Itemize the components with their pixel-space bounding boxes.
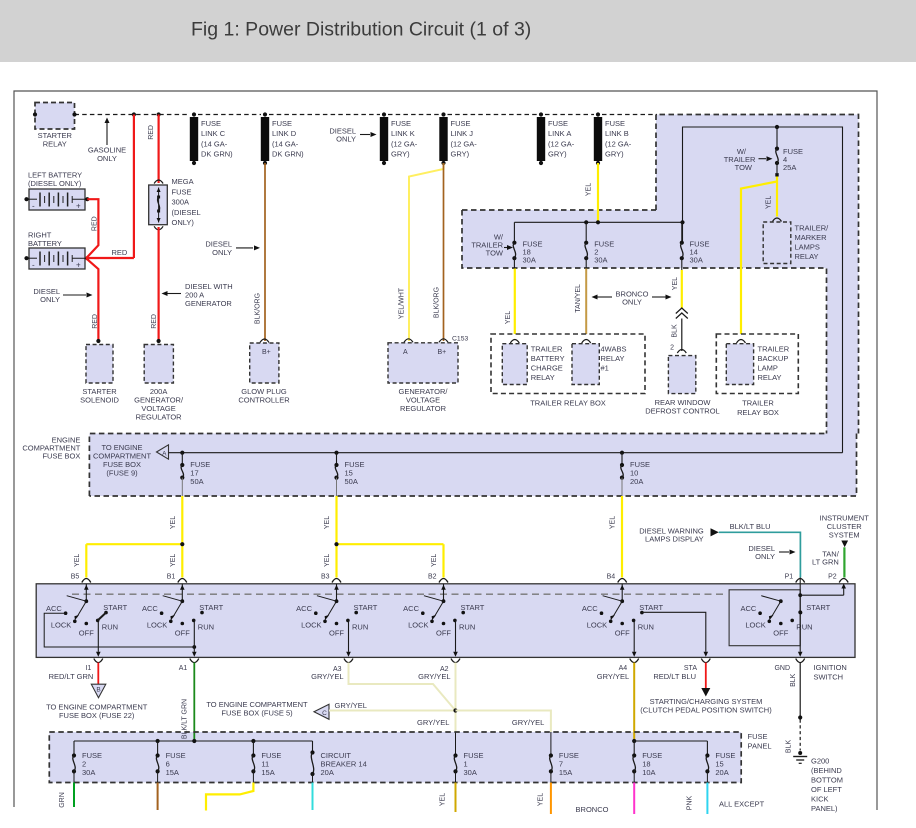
svg-text:GRY): GRY) [605, 150, 624, 159]
svg-text:GRY): GRY) [451, 150, 470, 159]
svg-text:B3: B3 [321, 574, 330, 581]
svg-text:RELAY: RELAY [531, 373, 555, 382]
svg-text:KICK: KICK [811, 795, 829, 804]
svg-text:GRY/YEL: GRY/YEL [417, 718, 449, 727]
svg-text:DEFROST CONTROL: DEFROST CONTROL [645, 407, 719, 416]
svg-text:RELAY: RELAY [43, 140, 67, 149]
svg-text:RED: RED [112, 248, 128, 257]
svg-text:RELAY: RELAY [601, 354, 625, 363]
svg-text:A: A [403, 349, 408, 356]
svg-text:30A: 30A [594, 256, 607, 265]
svg-text:OFF: OFF [175, 629, 190, 638]
svg-text:START: START [103, 603, 127, 612]
svg-text:REGULATOR: REGULATOR [136, 413, 183, 422]
svg-text:FUSE BOX: FUSE BOX [42, 452, 80, 461]
svg-text:RED: RED [92, 314, 99, 329]
svg-text:TAN/YEL: TAN/YEL [575, 284, 582, 313]
svg-text:(BEHIND: (BEHIND [811, 766, 842, 775]
svg-text:BACKUP: BACKUP [758, 354, 789, 363]
svg-text:ALL EXCEPT: ALL EXCEPT [719, 800, 765, 809]
svg-text:(14 GA-: (14 GA- [272, 139, 299, 148]
svg-text:TRAILER/: TRAILER/ [795, 224, 830, 233]
svg-text:15A: 15A [166, 768, 179, 777]
svg-text:START: START [639, 603, 663, 612]
svg-text:B+: B+ [262, 349, 271, 356]
svg-text:50A: 50A [190, 477, 203, 486]
svg-text:LINK C: LINK C [201, 129, 226, 138]
svg-text:B4: B4 [607, 574, 616, 581]
svg-text:GRY/YEL: GRY/YEL [311, 672, 343, 681]
svg-text:RUN: RUN [198, 622, 214, 631]
svg-text:LINK J: LINK J [451, 129, 474, 138]
svg-text:CONTROLLER: CONTROLLER [238, 396, 290, 405]
svg-text:YEL: YEL [766, 196, 773, 209]
svg-text:(FUSE 9): (FUSE 9) [106, 469, 138, 478]
svg-text:FUSE: FUSE [748, 732, 768, 741]
svg-text:ONLY: ONLY [622, 298, 642, 307]
svg-text:LINK D: LINK D [272, 129, 297, 138]
svg-text:G200: G200 [811, 757, 829, 766]
svg-text:LOCK: LOCK [51, 621, 71, 630]
svg-text:GRN: GRN [59, 792, 66, 808]
svg-text:BATTERY: BATTERY [531, 354, 565, 363]
svg-text:BLK: BLK [790, 673, 797, 687]
svg-text:OFF: OFF [329, 629, 344, 638]
svg-text:STA: STA [684, 665, 697, 672]
svg-text:YEL: YEL [538, 793, 545, 806]
svg-text:B5: B5 [71, 574, 80, 581]
svg-text:(DIESEL ONLY): (DIESEL ONLY) [28, 179, 82, 188]
svg-text:YEL/WHT: YEL/WHT [399, 287, 406, 319]
svg-text:DK GRN): DK GRN) [272, 150, 304, 159]
svg-text:C153: C153 [452, 336, 468, 343]
svg-text:DK GRN): DK GRN) [201, 150, 233, 159]
svg-text:(12 GA-: (12 GA- [391, 139, 418, 148]
svg-text:SWITCH: SWITCH [814, 672, 844, 681]
svg-text:BLK/LT BLU: BLK/LT BLU [730, 522, 771, 531]
svg-text:FUSE: FUSE [272, 119, 292, 128]
svg-text:GRY/YEL: GRY/YEL [418, 672, 450, 681]
svg-text:TRAILER RELAY BOX: TRAILER RELAY BOX [530, 399, 606, 408]
svg-text:B2: B2 [428, 574, 437, 581]
svg-text:FUSE: FUSE [451, 119, 471, 128]
svg-text:TOW: TOW [486, 249, 504, 258]
svg-text:FUSE: FUSE [605, 119, 625, 128]
svg-text:YEL: YEL [170, 516, 177, 529]
svg-text:YEL: YEL [170, 554, 177, 567]
svg-text:LINK A: LINK A [548, 129, 571, 138]
svg-text:FUSE: FUSE [201, 119, 221, 128]
svg-text:ACC: ACC [582, 604, 598, 613]
svg-text:FUSE: FUSE [548, 119, 568, 128]
svg-text:OFF: OFF [615, 629, 630, 638]
svg-text:GRY/YEL: GRY/YEL [335, 701, 367, 710]
svg-text:PANEL): PANEL) [811, 804, 838, 813]
svg-text:LOCK: LOCK [408, 621, 428, 630]
svg-text:LOCK: LOCK [301, 621, 321, 630]
svg-text:P2: P2 [828, 574, 837, 581]
svg-text:RED: RED [151, 314, 158, 329]
svg-text:RUN: RUN [352, 622, 368, 631]
svg-text:YEL: YEL [431, 554, 438, 567]
svg-text:START: START [199, 603, 223, 612]
svg-text:ACC: ACC [296, 604, 312, 613]
svg-text:B+: B+ [438, 349, 447, 356]
svg-text:PANEL: PANEL [748, 742, 772, 751]
svg-text:BOTTOM: BOTTOM [811, 776, 843, 785]
svg-text:RELAY: RELAY [795, 252, 819, 261]
svg-text:ONLY: ONLY [755, 552, 775, 561]
svg-text:ONLY: ONLY [40, 295, 60, 304]
svg-text:10A: 10A [642, 768, 655, 777]
svg-text:20A: 20A [630, 477, 643, 486]
svg-text:YEL: YEL [610, 516, 617, 529]
svg-text:FUSE: FUSE [391, 119, 411, 128]
svg-text:RELAY: RELAY [758, 373, 782, 382]
svg-text:30A: 30A [464, 768, 477, 777]
svg-text:REGULATOR: REGULATOR [400, 404, 447, 413]
svg-text:BLK/LT GRN: BLK/LT GRN [182, 699, 189, 739]
svg-text:RED/LT GRN: RED/LT GRN [49, 672, 94, 681]
svg-text:GRY): GRY) [548, 150, 567, 159]
svg-text:15A: 15A [559, 768, 572, 777]
svg-text:BLK/ORG: BLK/ORG [255, 293, 262, 324]
svg-text:RED: RED [92, 216, 99, 231]
svg-text:LAMPS: LAMPS [795, 243, 820, 252]
svg-text:OFF: OFF [773, 629, 788, 638]
svg-text:YEL: YEL [324, 516, 331, 529]
svg-text:(CLUTCH PEDAL POSITION SWITCH): (CLUTCH PEDAL POSITION SWITCH) [640, 706, 772, 715]
svg-text:20A: 20A [715, 768, 728, 777]
svg-text:+: + [76, 261, 81, 270]
svg-text:FUSE BOX (FUSE 5): FUSE BOX (FUSE 5) [221, 709, 293, 718]
svg-text:MARKER: MARKER [795, 233, 828, 242]
svg-text:RED: RED [148, 125, 155, 140]
svg-text:LINK K: LINK K [391, 129, 415, 138]
svg-text:GND: GND [774, 665, 790, 672]
svg-text:-: - [32, 261, 35, 270]
svg-text:YEL: YEL [324, 554, 331, 567]
svg-text:30A: 30A [523, 256, 536, 265]
svg-text:50A: 50A [345, 477, 358, 486]
svg-text:P1: P1 [785, 574, 794, 581]
svg-text:+: + [76, 202, 81, 211]
svg-text:(14 GA-: (14 GA- [201, 139, 228, 148]
svg-text:LOCK: LOCK [745, 621, 765, 630]
svg-text:RUN: RUN [638, 622, 654, 631]
svg-text:YEL: YEL [74, 554, 81, 567]
svg-text:Fig 1: Power Distribution Circ: Fig 1: Power Distribution Circuit (1 of … [191, 19, 531, 41]
svg-text:A: A [162, 450, 167, 457]
svg-text:RUN: RUN [102, 622, 118, 631]
svg-text:FUSE: FUSE [172, 187, 192, 196]
svg-text:BLK: BLK [671, 324, 678, 338]
svg-text:BLK/ORG: BLK/ORG [434, 287, 441, 318]
svg-text:(12 GA-: (12 GA- [548, 139, 575, 148]
svg-text:(DIESEL: (DIESEL [172, 208, 201, 217]
svg-text:PNK: PNK [687, 795, 694, 810]
svg-text:OFF: OFF [436, 629, 451, 638]
svg-text:RUN: RUN [796, 622, 812, 631]
svg-text:ONLY: ONLY [336, 135, 356, 144]
svg-text:2: 2 [670, 345, 674, 352]
svg-text:YEL: YEL [505, 311, 512, 324]
svg-text:START: START [806, 603, 830, 612]
svg-text:OFF: OFF [79, 629, 94, 638]
svg-text:START: START [354, 603, 378, 612]
svg-text:ONLY: ONLY [97, 154, 117, 163]
svg-text:ONLY): ONLY) [172, 218, 195, 227]
svg-text:TRAILER: TRAILER [742, 399, 774, 408]
svg-text:B: B [96, 687, 100, 694]
svg-text:GENERATOR: GENERATOR [185, 299, 232, 308]
svg-text:ONLY: ONLY [212, 248, 232, 257]
svg-text:CHARGE: CHARGE [531, 364, 563, 373]
svg-text:TOW: TOW [735, 163, 753, 172]
svg-text:LT GRN: LT GRN [812, 558, 839, 567]
svg-text:A4: A4 [619, 665, 628, 672]
svg-text:RED/LT BLU: RED/LT BLU [653, 672, 696, 681]
svg-text:MEGA: MEGA [172, 177, 194, 186]
svg-text:LOCK: LOCK [587, 621, 607, 630]
svg-text:IGNITION: IGNITION [814, 663, 847, 672]
svg-text:OF LEFT: OF LEFT [811, 785, 842, 794]
svg-text:LAMP: LAMP [758, 364, 778, 373]
svg-text:RELAY BOX: RELAY BOX [737, 408, 779, 417]
svg-text:(12 GA-: (12 GA- [451, 139, 478, 148]
svg-text:300A: 300A [172, 198, 190, 207]
svg-text:SOLENOID: SOLENOID [80, 396, 119, 405]
svg-text:YEL: YEL [440, 793, 447, 806]
svg-text:C: C [322, 710, 327, 717]
svg-text:TRAILER: TRAILER [758, 345, 790, 354]
svg-text:-: - [32, 202, 35, 211]
svg-text:(12 GA-: (12 GA- [605, 139, 632, 148]
svg-text:START: START [461, 603, 485, 612]
svg-text:B1: B1 [167, 574, 176, 581]
svg-text:I1: I1 [85, 665, 91, 672]
svg-text:YEL: YEL [586, 183, 593, 196]
svg-text:BRONCO: BRONCO [576, 805, 609, 814]
svg-text:YEL: YEL [672, 277, 679, 290]
svg-text:LINK B: LINK B [605, 129, 629, 138]
svg-text:GRY): GRY) [391, 150, 410, 159]
svg-text:ACC: ACC [740, 604, 756, 613]
svg-text:30A: 30A [82, 768, 95, 777]
svg-text:ACC: ACC [403, 604, 419, 613]
svg-text:20A: 20A [321, 768, 334, 777]
svg-text:FUSE BOX (FUSE 22): FUSE BOX (FUSE 22) [59, 711, 135, 720]
svg-text:#1: #1 [601, 364, 609, 373]
svg-text:ACC: ACC [46, 604, 62, 613]
svg-text:A1: A1 [179, 665, 188, 672]
svg-text:15A: 15A [261, 768, 274, 777]
svg-text:25A: 25A [783, 163, 796, 172]
svg-text:LOCK: LOCK [147, 621, 167, 630]
svg-text:SYSTEM: SYSTEM [829, 531, 860, 540]
svg-text:GRY/YEL: GRY/YEL [512, 718, 544, 727]
svg-text:BLK: BLK [786, 740, 793, 754]
svg-text:ACC: ACC [142, 604, 158, 613]
svg-text:GRY/YEL: GRY/YEL [597, 672, 629, 681]
svg-text:LAMPS DISPLAY: LAMPS DISPLAY [645, 535, 704, 544]
svg-text:30A: 30A [690, 256, 703, 265]
svg-text:TRAILER: TRAILER [531, 345, 563, 354]
svg-text:RUN: RUN [459, 622, 475, 631]
svg-text:BATTERY: BATTERY [28, 239, 62, 248]
svg-text:4WABS: 4WABS [601, 345, 627, 354]
